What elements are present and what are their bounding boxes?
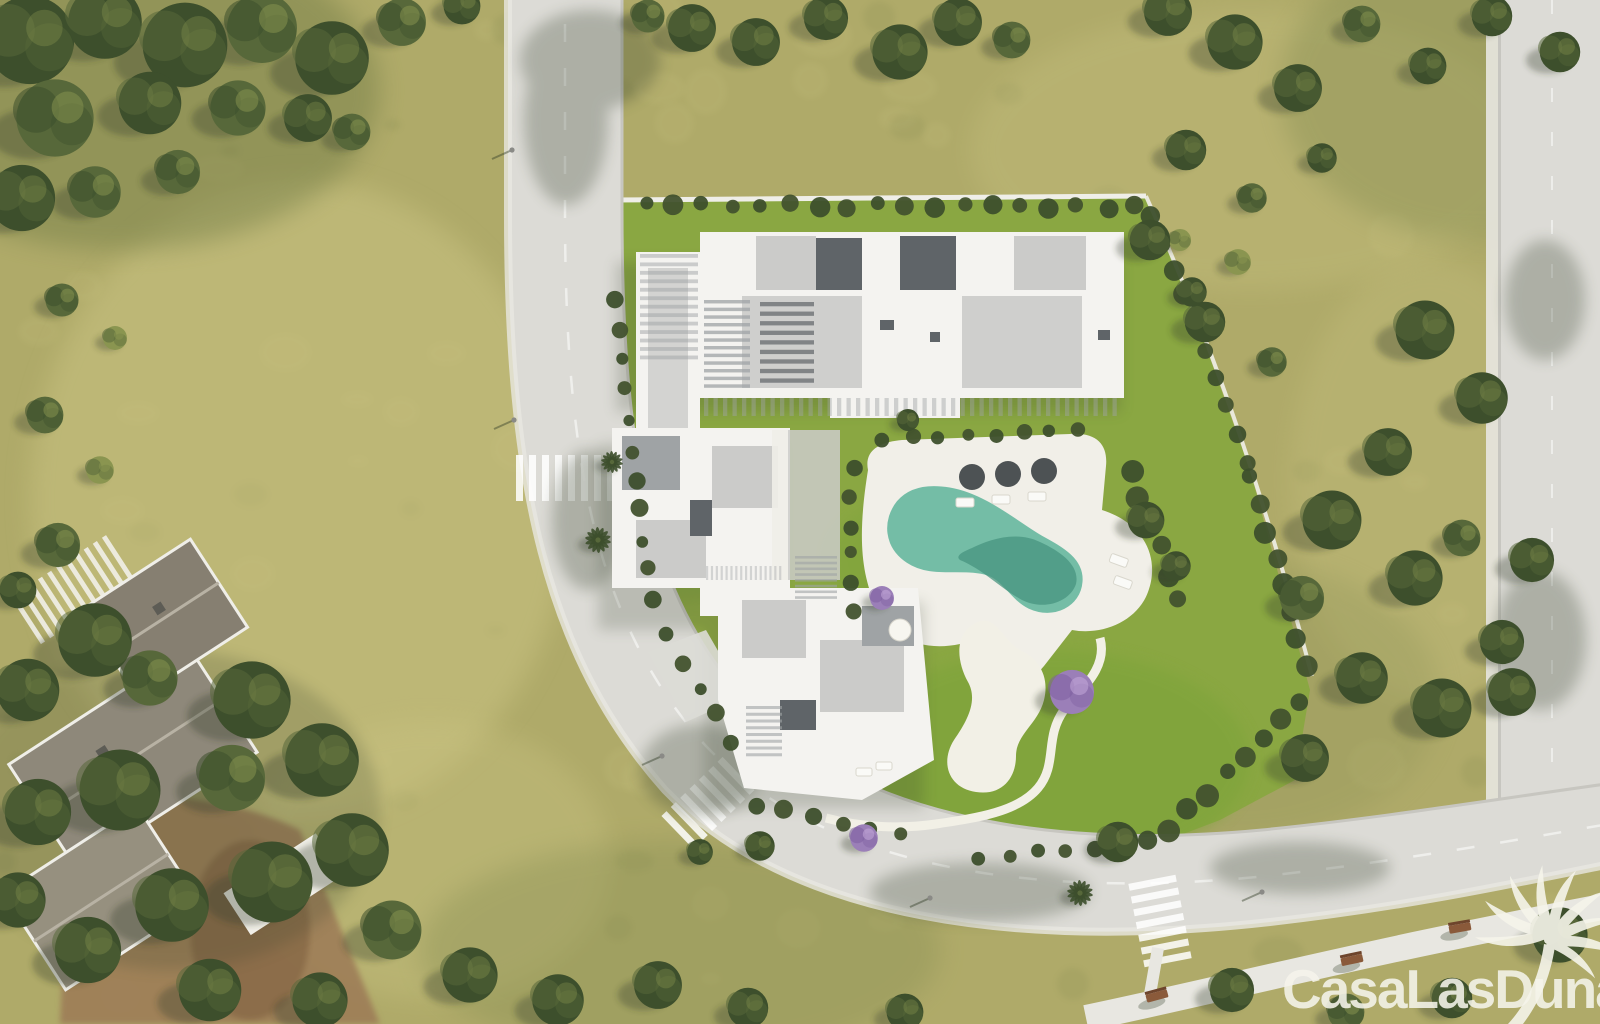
hedge-bush	[842, 489, 857, 504]
tree-highlight	[1530, 545, 1548, 563]
slat	[704, 369, 750, 372]
roof-box-dark	[780, 700, 816, 730]
hedge-bush	[695, 683, 707, 695]
slat	[640, 330, 698, 334]
slat	[740, 566, 742, 580]
slat	[1008, 398, 1012, 416]
hedge-bush	[1169, 590, 1186, 607]
slat	[818, 398, 822, 416]
tree-highlight	[1271, 352, 1283, 364]
hedge-bush	[1121, 460, 1144, 483]
lamp-post	[927, 895, 932, 900]
slat	[923, 398, 927, 416]
hedge-bush	[895, 197, 914, 216]
tree-highlight	[1321, 148, 1333, 160]
slat	[706, 566, 708, 580]
hedge-bush	[640, 560, 655, 575]
hedge-bush	[1071, 422, 1085, 436]
slat	[769, 566, 771, 580]
hedge-bush	[894, 827, 907, 840]
slat	[704, 338, 750, 341]
hedge-bush	[1197, 343, 1213, 359]
tree-highlight	[1386, 436, 1406, 456]
hedge-bush	[874, 433, 889, 448]
tree-highlight	[400, 6, 420, 26]
tree-highlight	[85, 927, 112, 954]
tree-highlight	[690, 12, 710, 32]
tree-highlight	[329, 33, 359, 63]
grass-mottle	[792, 62, 828, 98]
roof-panel	[962, 296, 1082, 388]
tree-highlight	[1179, 232, 1188, 241]
slat	[746, 747, 782, 750]
hedge-bush	[612, 322, 629, 339]
slat	[795, 568, 837, 571]
hedge-bush	[726, 200, 740, 214]
slat	[1037, 398, 1041, 416]
tree-highlight	[1010, 27, 1025, 42]
tree-highlight	[1510, 676, 1530, 696]
apartment-building-left	[612, 428, 790, 616]
hedge-bush	[931, 431, 944, 444]
slat	[726, 566, 728, 580]
tree-highlight	[881, 590, 891, 600]
hedge-bush	[1031, 844, 1045, 858]
tree-highlight	[1233, 23, 1256, 46]
slat	[795, 573, 837, 576]
tree-highlight	[16, 881, 39, 904]
hedge-bush	[1038, 198, 1058, 218]
hedge-bush	[781, 195, 798, 212]
slat	[875, 398, 879, 416]
tree-highlight	[16, 577, 31, 592]
roof-box	[712, 446, 778, 508]
tree-highlight	[1360, 11, 1375, 26]
slat	[714, 398, 718, 416]
palm-crown	[595, 537, 600, 542]
slat	[733, 398, 737, 416]
hedge-bush	[843, 575, 859, 591]
tree-highlight	[35, 789, 62, 816]
slat	[721, 566, 723, 580]
slat	[970, 398, 974, 416]
tree-highlight	[1300, 583, 1318, 601]
tree-highlight	[898, 33, 921, 56]
slat	[980, 398, 984, 416]
slat	[989, 398, 993, 416]
aerial-development-scene: CasaLasDunas	[0, 0, 1600, 1024]
grass-mottle	[384, 119, 400, 130]
tree-highlight	[169, 880, 199, 910]
hedge-bush	[618, 381, 632, 395]
slat	[742, 398, 746, 416]
slat	[711, 566, 713, 580]
tree-highlight	[1329, 500, 1353, 524]
slat	[760, 321, 814, 325]
slat	[752, 398, 756, 416]
hedge-bush	[1152, 536, 1171, 555]
hedge-bush	[707, 704, 725, 722]
hedge-bush	[640, 197, 653, 210]
hedge-bush	[1043, 425, 1055, 437]
tree-highlight	[1500, 627, 1518, 645]
slat	[760, 312, 814, 316]
hedge-bush	[1270, 708, 1291, 729]
slat	[1027, 398, 1031, 416]
hedge-bush	[1004, 850, 1017, 863]
tree-highlight	[1426, 53, 1441, 68]
slat	[704, 308, 750, 311]
umbrella	[959, 464, 985, 490]
palm-crown	[1077, 890, 1082, 895]
tree-highlight	[656, 969, 676, 989]
tree-highlight	[52, 92, 84, 124]
slat	[755, 566, 757, 580]
hedge-bush	[1290, 693, 1308, 711]
sun-lounger	[1028, 492, 1046, 501]
hedge-bush	[723, 735, 739, 751]
slat	[704, 384, 750, 387]
hedge-bush	[1242, 468, 1257, 483]
hedge-bush	[693, 196, 708, 211]
slat	[723, 398, 727, 416]
slat	[704, 346, 750, 349]
slat	[1084, 398, 1088, 416]
hedge-bush	[1138, 831, 1157, 850]
slat	[1075, 398, 1079, 416]
slat	[1103, 398, 1107, 416]
slat	[760, 378, 814, 382]
hedge-bush	[1218, 397, 1234, 413]
tree-highlight	[92, 615, 122, 645]
tree-highlight	[148, 659, 171, 682]
tree-highlight	[1230, 975, 1248, 993]
shadow	[1210, 842, 1390, 894]
slat	[951, 398, 955, 416]
tree-highlight	[43, 402, 58, 417]
slat	[999, 398, 1003, 416]
tree-highlight	[19, 175, 46, 202]
slat	[885, 398, 889, 416]
tree-highlight	[863, 829, 874, 840]
tree-highlight	[114, 330, 124, 340]
tree-highlight	[99, 461, 110, 472]
slat	[735, 566, 737, 580]
slat	[932, 398, 936, 416]
tree-highlight	[699, 843, 710, 854]
grass-mottle	[889, 114, 925, 140]
hedge-bush	[838, 199, 856, 217]
hedge-bush	[636, 536, 648, 548]
hedge-bush	[606, 291, 624, 309]
tree-highlight	[1148, 226, 1165, 243]
tree-highlight	[1191, 282, 1203, 294]
slat	[760, 350, 814, 354]
slat	[640, 356, 698, 360]
hedge-bush	[805, 808, 822, 825]
tree-highlight	[1070, 677, 1088, 695]
tree-highlight	[1480, 380, 1501, 401]
grass-mottle	[1057, 968, 1089, 1000]
slat	[640, 262, 698, 266]
hedge-bush	[623, 415, 634, 426]
slat	[1018, 398, 1022, 416]
hedge-bush	[1017, 424, 1033, 440]
slat	[799, 398, 803, 416]
hedge-bush	[1157, 820, 1180, 843]
skylight	[930, 332, 940, 342]
sun-lounger	[856, 768, 872, 776]
roof-box	[756, 236, 816, 290]
slat	[780, 398, 784, 416]
hedge-bush	[1100, 199, 1119, 218]
slat	[746, 740, 782, 743]
slat	[1065, 398, 1069, 416]
tree-highlight	[319, 735, 349, 765]
slat	[765, 566, 767, 580]
slat	[746, 713, 782, 716]
slat	[640, 313, 698, 317]
hedge-bush	[906, 429, 921, 444]
slat	[1046, 398, 1050, 416]
tree-highlight	[56, 530, 74, 548]
grass-mottle	[685, 69, 727, 115]
slat	[942, 398, 946, 416]
sun-lounger	[956, 498, 974, 507]
hedge-bush	[1164, 260, 1185, 281]
slat	[640, 288, 698, 292]
lamp-post	[659, 753, 664, 758]
slat	[640, 271, 698, 275]
hedge-bush	[845, 546, 857, 558]
slat	[795, 562, 837, 565]
slat	[760, 566, 762, 580]
tree-highlight	[1490, 2, 1507, 19]
slat	[746, 706, 782, 709]
slat	[809, 398, 813, 416]
hedge-bush	[659, 627, 674, 642]
hedge-bush	[628, 472, 645, 489]
hedge-bush	[1220, 764, 1235, 779]
slat	[750, 566, 752, 580]
slat	[746, 733, 782, 736]
tree-highlight	[249, 674, 281, 706]
hedge-bush	[774, 800, 793, 819]
slat	[640, 305, 698, 309]
slat	[795, 579, 837, 582]
hedge-bush	[1229, 426, 1246, 443]
crosswalk-stripe	[542, 455, 549, 501]
tree-highlight	[1360, 660, 1381, 681]
hedge-bush	[871, 196, 885, 210]
tree-highlight	[759, 836, 771, 848]
palm-crown	[1544, 936, 1552, 944]
tree-highlight	[26, 10, 62, 46]
hedge-bush	[810, 197, 830, 217]
slat	[795, 585, 837, 588]
hedge-bush	[1296, 655, 1317, 676]
slat	[866, 398, 870, 416]
tree-highlight	[389, 910, 413, 934]
lamp-post	[509, 147, 514, 152]
hedge-bush	[1208, 370, 1225, 387]
slat	[746, 726, 782, 729]
hedge-bush	[990, 429, 1004, 443]
tree-highlight	[1144, 507, 1159, 522]
tree-highlight	[1184, 136, 1201, 153]
tree-highlight	[1422, 310, 1446, 334]
right-road-curb	[1498, 0, 1501, 848]
grass-mottle	[18, 317, 58, 346]
tree-highlight	[25, 669, 51, 695]
slat	[704, 331, 750, 334]
hedge-bush	[616, 353, 628, 365]
sun-lounger	[876, 762, 892, 770]
hedge-bush	[924, 197, 945, 218]
slat	[1113, 398, 1117, 416]
tree-highlight	[93, 174, 114, 195]
slat	[745, 566, 747, 580]
hedge-bush	[675, 656, 692, 673]
hedge-bush	[748, 798, 765, 815]
slat	[795, 596, 837, 599]
tree-highlight	[1439, 688, 1463, 712]
slat	[771, 398, 775, 416]
tree-highlight	[824, 3, 842, 21]
slat	[704, 354, 750, 357]
hedge-bush	[1196, 784, 1219, 807]
hedge-bush	[1286, 629, 1306, 649]
umbrella	[1031, 458, 1057, 484]
tree-highlight	[1296, 72, 1316, 92]
tree-highlight	[236, 89, 259, 112]
slat	[640, 254, 698, 258]
hedge-bush	[663, 194, 684, 215]
slat	[704, 361, 750, 364]
slat	[837, 398, 841, 416]
tree-highlight	[116, 762, 149, 795]
slat	[790, 398, 794, 416]
courtyard-path	[772, 430, 788, 580]
lamp-post	[1259, 889, 1264, 894]
tree-highlight	[181, 16, 216, 51]
tree-highlight	[1251, 188, 1263, 200]
slat	[795, 556, 837, 559]
roof-box	[820, 640, 904, 712]
tree	[290, 972, 348, 1024]
tree-highlight	[268, 854, 301, 887]
slat	[779, 566, 781, 580]
umbrella	[995, 461, 1021, 487]
watermark-text: CasaLasDunas	[1282, 958, 1600, 1020]
tree-highlight	[61, 289, 75, 303]
roof-box	[742, 600, 806, 658]
slat	[847, 398, 851, 416]
lamp-post	[511, 417, 516, 422]
hedge-bush	[753, 199, 767, 213]
crosswalk-stripe	[529, 455, 536, 501]
hedge-bush	[1254, 522, 1276, 544]
grass-mottle	[655, 103, 694, 144]
slat	[1094, 398, 1098, 416]
slat	[746, 753, 782, 756]
slat	[761, 398, 765, 416]
slat	[640, 322, 698, 326]
tree-highlight	[956, 6, 976, 26]
slat	[704, 377, 750, 380]
slat	[704, 398, 708, 416]
tree-highlight	[556, 982, 577, 1003]
hedge-bush	[626, 446, 640, 460]
tree-highlight	[647, 5, 661, 19]
hedge-bush	[1125, 196, 1143, 214]
slat	[640, 296, 698, 300]
skylight	[880, 320, 894, 330]
tree-highlight	[229, 755, 256, 782]
palm-crown	[610, 460, 614, 464]
slat	[1056, 398, 1060, 416]
hedge-bush	[836, 817, 851, 832]
hedge-bush	[843, 521, 858, 536]
right-sidewalk	[1486, 0, 1498, 848]
hedge-bush	[1176, 798, 1197, 819]
hedge-bush	[971, 852, 985, 866]
tree-highlight	[1175, 556, 1187, 568]
tree-highlight	[1116, 828, 1133, 845]
right-road-surface	[1500, 0, 1600, 848]
roof-box	[1014, 236, 1086, 290]
grass-mottle	[923, 122, 951, 148]
hedge-bush	[1058, 844, 1072, 858]
tree-highlight	[1460, 525, 1475, 540]
hedge-bush	[644, 591, 662, 609]
tree-highlight	[746, 994, 763, 1011]
right-road	[1486, 0, 1600, 848]
slat	[856, 398, 860, 416]
tree-highlight	[259, 4, 288, 33]
shadow	[1505, 240, 1585, 360]
slat	[795, 591, 837, 594]
tree-highlight	[903, 999, 918, 1014]
slat	[760, 369, 814, 373]
tree-highlight	[207, 969, 233, 995]
slat	[961, 398, 965, 416]
hedge-bush	[958, 197, 972, 211]
slat	[704, 315, 750, 318]
roof-box-dark	[900, 236, 956, 290]
white-parasol	[889, 619, 911, 641]
tree-highlight	[349, 825, 379, 855]
tree-highlight	[1237, 253, 1248, 264]
hedge-bush	[1068, 197, 1083, 212]
slat	[704, 300, 750, 303]
slat	[774, 566, 776, 580]
slat	[760, 302, 814, 306]
tree-highlight	[147, 82, 173, 108]
slat	[640, 339, 698, 343]
tree-highlight	[754, 26, 774, 46]
aerial-render: CasaLasDunas	[0, 0, 1600, 1024]
tree-highlight	[350, 119, 365, 134]
tree-highlight	[907, 412, 916, 421]
tree-highlight	[468, 956, 491, 979]
slat	[704, 323, 750, 326]
roof-box-dark	[816, 238, 862, 290]
slat	[760, 359, 814, 363]
skylight	[1098, 330, 1110, 340]
slat	[828, 398, 832, 416]
hedge-bush	[1012, 198, 1027, 213]
